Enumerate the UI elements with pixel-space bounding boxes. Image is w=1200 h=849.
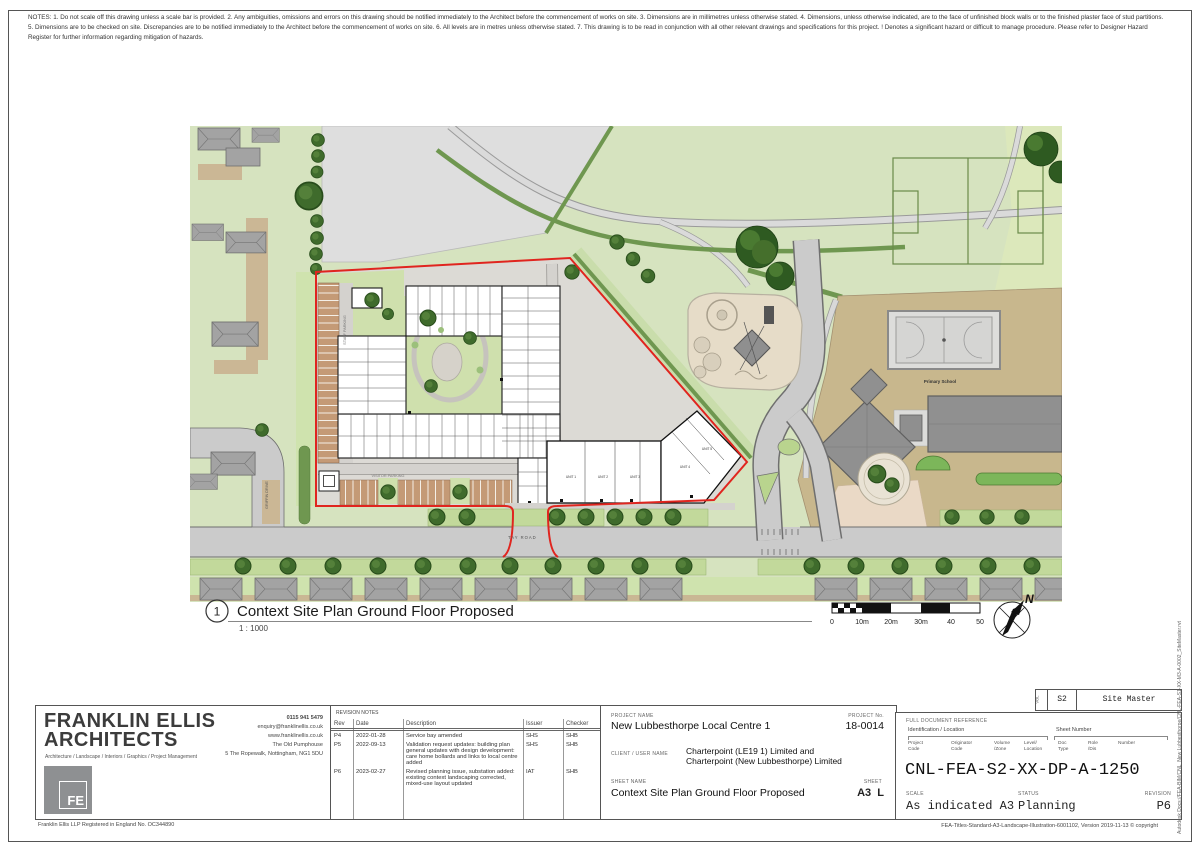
substation <box>319 471 339 491</box>
rev-cell: SHB <box>563 740 601 767</box>
revision-panel: REVISION NOTES Rev Date Description Issu… <box>330 705 602 820</box>
registration-footer: Franklin Ellis LLP Registered in England… <box>38 822 174 828</box>
scale-bar: 0 10m 20m 30m 40 50 <box>830 603 984 626</box>
revision-heading: REVISION NOTES <box>336 710 379 716</box>
ref-col: Doc Type <box>1058 741 1068 752</box>
architect-name: FRANKLIN ELLIS ARCHITECTS <box>44 712 215 750</box>
site-plan: TAY ROAD GRIFFIN DRIVE STAFF PARKING VIS… <box>188 0 1077 602</box>
architect-panel: FRANKLIN ELLIS ARCHITECTS Architecture /… <box>35 705 332 820</box>
staff-parking-bays <box>318 283 339 463</box>
rev-cell: SHB <box>563 731 601 740</box>
rev-cell: Validation request updates: building pla… <box>403 740 523 767</box>
ref-col: Role /Dis <box>1088 741 1098 752</box>
visitor-parking-label: VISITOR PARKING <box>372 474 405 478</box>
unit-label: UNIT 2 <box>598 475 608 479</box>
view-title: 1 Context Site Plan Ground Floor Propose… <box>206 600 812 633</box>
rev-cell: IAT <box>523 767 563 788</box>
staff-parking-label: STAFF PARKING <box>343 315 347 345</box>
architect-website: www.franklinellis.co.uk <box>225 732 323 741</box>
sheet-name: Context Site Plan Ground Floor Proposed <box>611 787 805 799</box>
ref-col: Number <box>1118 741 1135 747</box>
vol-label: VOL <box>1035 695 1040 703</box>
side-road-label: GRIFFIN DRIVE <box>265 481 269 509</box>
sheet-size: A3 L <box>857 787 884 799</box>
rev-cell: 2023-02-27 <box>353 767 403 788</box>
project-name: New Lubbesthorpe Local Centre 1 <box>611 720 770 732</box>
view-title-text: Context Site Plan Ground Floor Proposed <box>237 603 514 620</box>
rev-cell: P4 <box>331 731 353 740</box>
tay-road <box>190 527 1062 557</box>
volume-strip: VOL S2 Site Master <box>1035 689 1182 711</box>
template-footer: FEA-Titles-Standard-A3-Landscape-Illustr… <box>941 823 1158 829</box>
view-scale: 1 : 1000 <box>239 624 268 633</box>
visitor-parking-bays <box>340 480 378 505</box>
unit-label: UNIT 3 <box>630 475 640 479</box>
ref-col: Originator Code <box>951 741 972 752</box>
rev-cell: P6 <box>331 767 353 788</box>
project-panel: PROJECT NAME New Lubbesthorpe Local Cent… <box>600 705 897 820</box>
rev-cell: SHB <box>563 767 601 788</box>
sheet-name-label: SHEET NAME <box>611 779 646 785</box>
project-no-label: PROJECT No. <box>848 713 884 719</box>
tay-road-label: TAY ROAD <box>508 535 537 540</box>
scale-tick: 0 <box>830 619 834 626</box>
primary-school-label: Primary School <box>924 379 956 384</box>
rev-cell: 2022-09-13 <box>353 740 403 767</box>
rev-col-header: Description <box>403 719 523 731</box>
architect-address2: 5 The Ropewalk, Nottingham, NG1 5DU <box>225 750 323 759</box>
playground <box>688 293 802 390</box>
ident-label: Identification / Location <box>908 727 964 733</box>
unit-label: UNIT 5 <box>702 447 712 451</box>
view-number: 1 <box>214 605 221 619</box>
scale-tick: 10m <box>855 619 869 626</box>
rev-cell: 2022-01-28 <box>353 731 403 740</box>
project-no: 18-0014 <box>845 720 884 732</box>
rev-col-header: Date <box>353 719 403 731</box>
ref-col: Project Code <box>908 741 923 752</box>
reference-panel: FULL DOCUMENT REFERENCE Identification /… <box>895 712 1182 820</box>
scale-value: As indicated A3 <box>906 799 1014 813</box>
rev-cell: SHS <box>523 740 563 767</box>
rev-cell: Revised planning issue, substation added… <box>403 767 523 788</box>
client-name: Charterpoint (LE19 1) Limited and Charte… <box>686 746 842 766</box>
architect-contact: 0115 941 5479 enquiry@franklinellis.co.u… <box>225 714 323 759</box>
full-doc-label: FULL DOCUMENT REFERENCE <box>906 718 987 724</box>
logo-text: FE <box>67 793 84 808</box>
scale-tick: 30m <box>914 619 928 626</box>
revision-value: P6 <box>1157 799 1171 813</box>
scale-tick: 20m <box>884 619 898 626</box>
architect-tagline: Architecture / Landscape / Interiors / G… <box>45 754 197 760</box>
sports-court <box>888 311 1000 369</box>
revision-table: Rev Date Description Issuer Checker P4 2… <box>331 719 601 788</box>
sheet-number-label: Sheet Number <box>1056 727 1091 733</box>
north-label: N <box>1025 592 1034 606</box>
status-label: STATUS <box>1018 791 1039 797</box>
rev-cell: SHS <box>523 731 563 740</box>
vol-name: Site Master <box>1077 690 1181 710</box>
sheet-label: SHEET <box>864 779 882 785</box>
drawing-sheet: NOTES: 1. Do not scale off this drawing … <box>0 0 1200 849</box>
document-reference: CNL-FEA-S2-XX-DP-A-1250 <box>905 761 1140 780</box>
scale-label: SCALE <box>906 791 924 797</box>
rev-col-header: Rev <box>331 719 353 731</box>
ref-col: Volume /Zone <box>994 741 1010 752</box>
project-name-label: PROJECT NAME <box>611 713 654 719</box>
vol-value: S2 <box>1048 690 1077 710</box>
scale-tick: 40 <box>947 619 955 626</box>
unit-label: UNIT 1 <box>566 475 576 479</box>
status-value: Planning <box>1018 799 1076 813</box>
rev-col-header: Checker <box>563 719 601 731</box>
architect-logo: FE <box>44 766 92 814</box>
scale-tick: 50 <box>976 619 984 626</box>
rev-cell: Service bay amended <box>403 731 523 740</box>
architect-address1: The Old Pumphouse <box>225 741 323 750</box>
client-label: CLIENT / USER NAME <box>611 751 668 757</box>
rev-cell: P5 <box>331 740 353 767</box>
architect-email: enquiry@franklinellis.co.uk <box>225 723 323 732</box>
file-path-sidetext: Autodesk Docs://FEA-BIM/CNL_New Lubbesth… <box>1177 621 1183 834</box>
revision-label: REVISION <box>1145 791 1171 797</box>
architect-phone: 0115 941 5479 <box>225 714 323 723</box>
rev-col-header: Issuer <box>523 719 563 731</box>
ref-col: Level/ Location <box>1024 741 1042 752</box>
unit-label: UNIT 4 <box>680 465 690 469</box>
